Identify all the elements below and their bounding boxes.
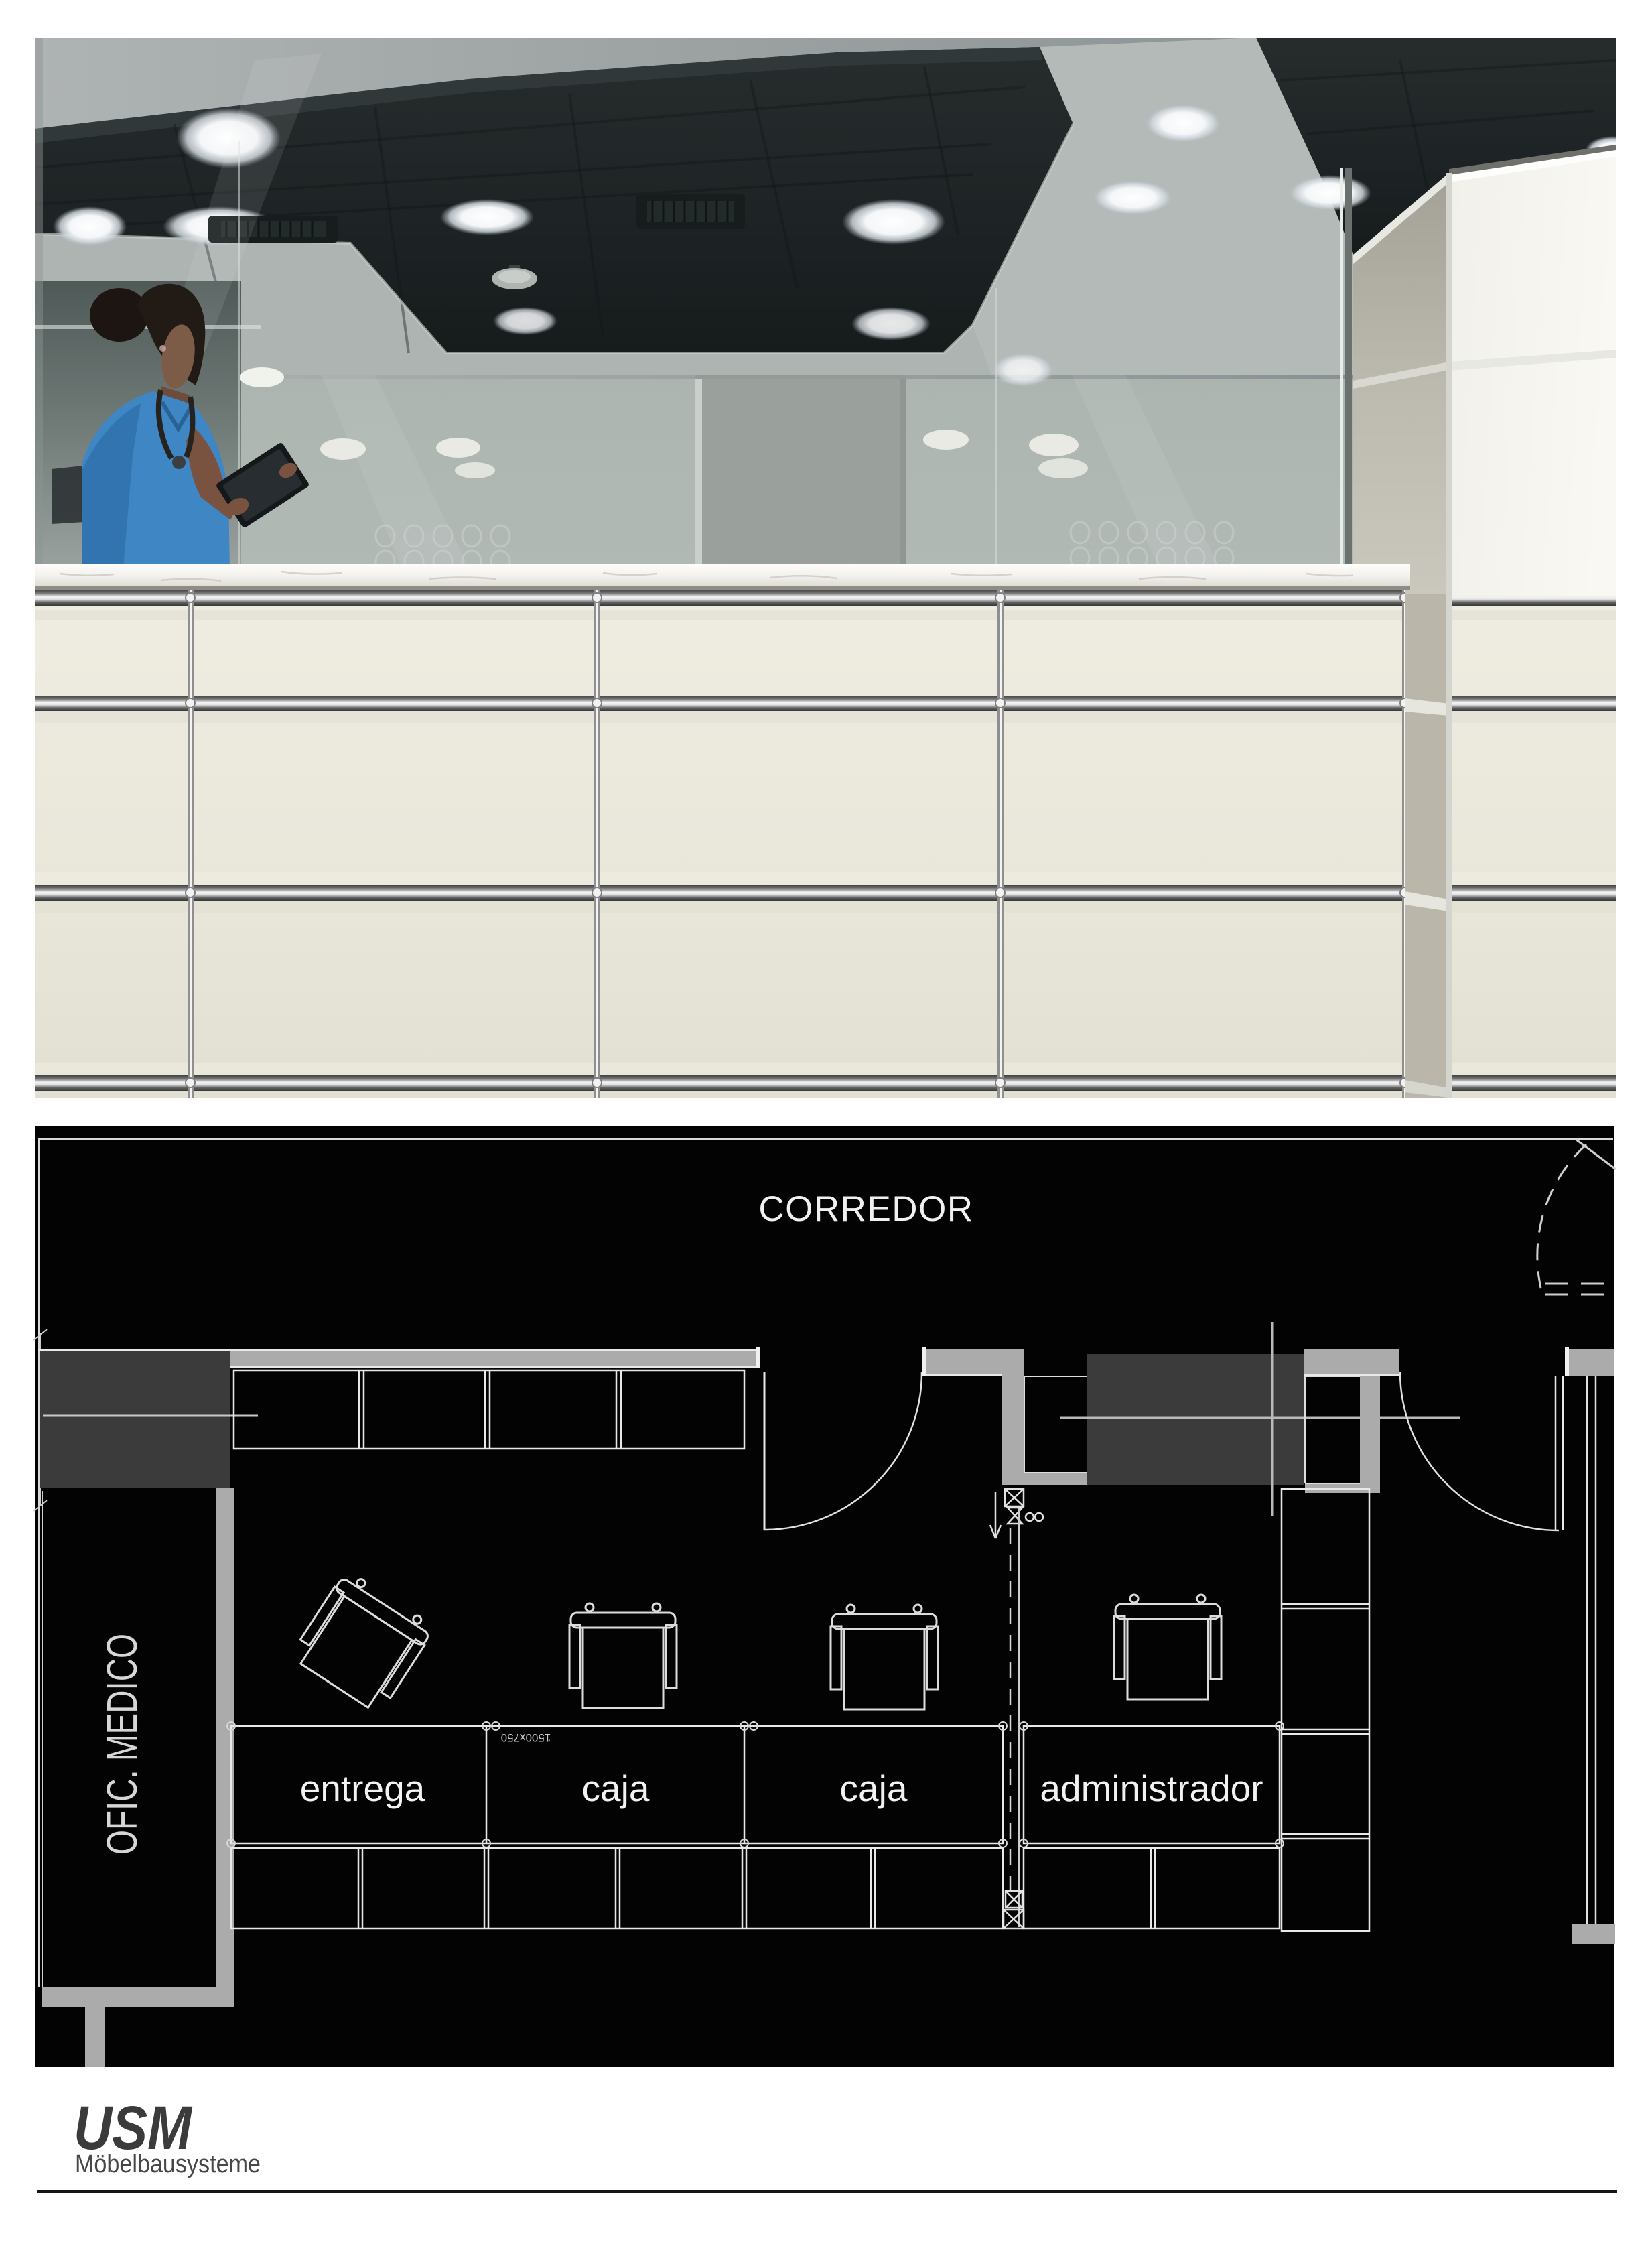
- svg-text:caja: caja: [582, 1768, 650, 1809]
- svg-text:OFIC. MEDICO: OFIC. MEDICO: [98, 1634, 146, 1855]
- svg-text:entrega: entrega: [300, 1768, 425, 1809]
- svg-text:1500x750: 1500x750: [501, 1731, 551, 1744]
- svg-text:caja: caja: [840, 1768, 908, 1809]
- svg-text:CORREDOR: CORREDOR: [758, 1189, 973, 1229]
- svg-text:administrador: administrador: [1040, 1768, 1263, 1809]
- svg-text:Möbelbausysteme: Möbelbausysteme: [75, 2150, 261, 2178]
